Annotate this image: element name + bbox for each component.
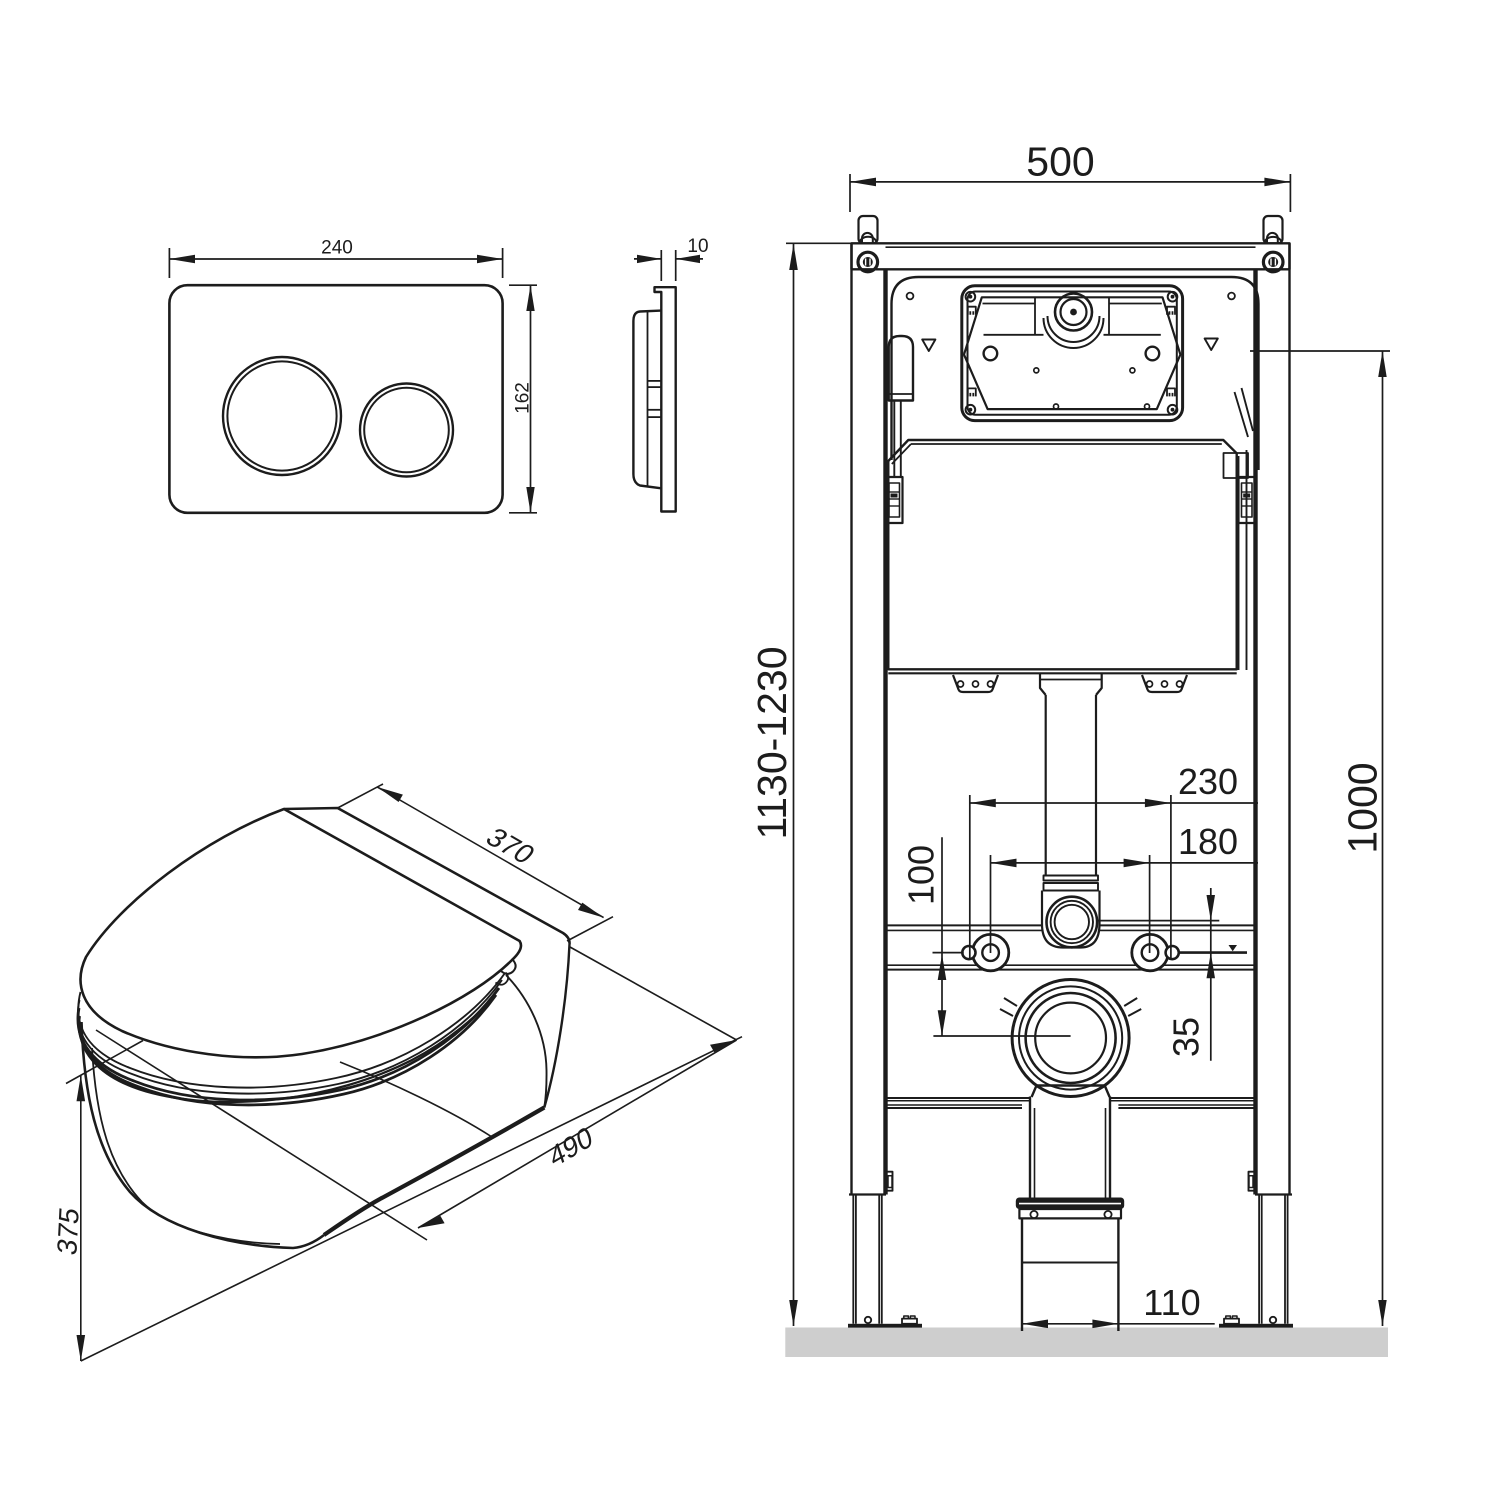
svg-text:100: 100 — [900, 845, 941, 905]
svg-text:162: 162 — [513, 382, 534, 414]
svg-text:375: 375 — [52, 1205, 85, 1258]
svg-text:240: 240 — [321, 238, 353, 259]
svg-text:500: 500 — [1026, 139, 1094, 185]
svg-text:1130-1230: 1130-1230 — [749, 646, 795, 839]
svg-text:1000: 1000 — [1339, 762, 1385, 853]
svg-text:110: 110 — [1143, 1282, 1200, 1323]
svg-text:10: 10 — [687, 236, 708, 257]
svg-text:180: 180 — [1178, 821, 1238, 862]
svg-text:230: 230 — [1178, 761, 1238, 802]
svg-text:35: 35 — [1166, 1017, 1207, 1057]
